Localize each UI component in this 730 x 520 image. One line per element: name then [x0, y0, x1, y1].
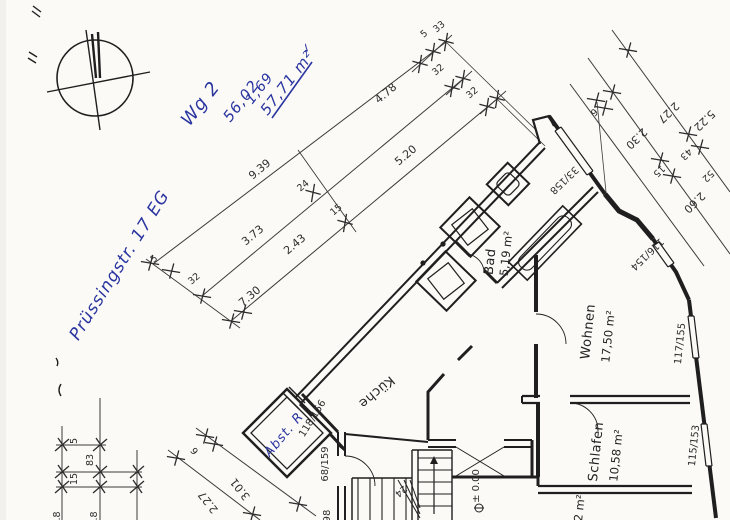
door-partial-tag: 98 [322, 510, 333, 520]
dim-bottom-seg-d: 1.8 [52, 511, 63, 520]
room-cut-area: 12 m² [570, 494, 587, 520]
dim-bottom-seg-e: 1.8 [89, 511, 100, 520]
door-stair-tag: 68/159 [320, 446, 331, 481]
dim-bottom-seg-b: 83 [85, 454, 96, 466]
dim-bottom-seg-c: 15 [69, 473, 80, 485]
scan-edge [0, 0, 6, 520]
floor-plan-scan: Wg 2 56,02 1,69 57,71 m² ✓ Prüssingstr. … [0, 0, 730, 520]
dim-bottom-seg-a: 5 [69, 438, 80, 444]
level-label: ± 0.00 [471, 469, 482, 503]
